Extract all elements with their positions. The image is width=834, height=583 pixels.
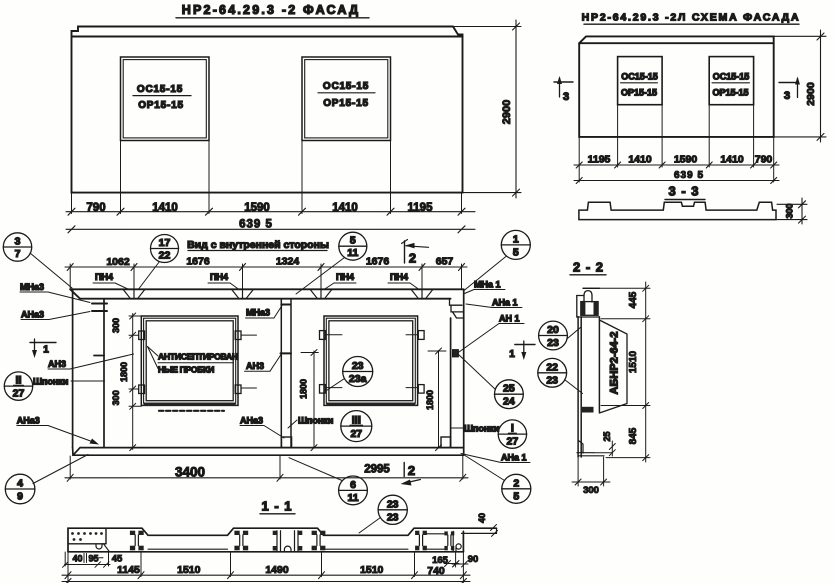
svg-text:1195: 1195 bbox=[408, 202, 434, 214]
svg-text:4: 4 bbox=[17, 478, 23, 490]
svg-text:1800: 1800 bbox=[299, 379, 309, 399]
svg-text:3 - 3: 3 - 3 bbox=[668, 184, 699, 199]
svg-text:300: 300 bbox=[111, 390, 121, 405]
svg-text:445: 445 bbox=[628, 291, 639, 308]
svg-text:790: 790 bbox=[86, 202, 105, 214]
svg-text:11: 11 bbox=[347, 492, 358, 504]
svg-text:ОС15-15: ОС15-15 bbox=[137, 84, 183, 95]
svg-text:ОР15-15: ОР15-15 bbox=[712, 88, 748, 98]
svg-text:1510: 1510 bbox=[628, 350, 639, 373]
svg-text:Вид с внутренней стороны: Вид с внутренней стороны bbox=[187, 239, 329, 251]
svg-text:7: 7 bbox=[15, 248, 21, 260]
svg-text:23: 23 bbox=[387, 511, 399, 523]
svg-text:27: 27 bbox=[350, 428, 362, 440]
svg-text:23: 23 bbox=[387, 498, 399, 510]
svg-text:2900: 2900 bbox=[805, 82, 817, 106]
svg-text:АНТИСЕПТИРОВАН: АНТИСЕПТИРОВАН bbox=[158, 352, 238, 362]
svg-text:1676: 1676 bbox=[366, 256, 390, 268]
svg-text:5: 5 bbox=[513, 246, 519, 258]
svg-text:27: 27 bbox=[13, 388, 25, 400]
svg-text:25: 25 bbox=[503, 383, 515, 395]
svg-text:24: 24 bbox=[503, 396, 515, 408]
svg-text:1: 1 bbox=[513, 233, 519, 245]
svg-text:НР2-64.29.3 -2 ФАСАД: НР2-64.29.3 -2 ФАСАД bbox=[182, 3, 360, 17]
svg-text:1062: 1062 bbox=[106, 256, 130, 268]
svg-text:1590: 1590 bbox=[674, 154, 698, 166]
svg-text:1410: 1410 bbox=[152, 202, 178, 214]
svg-text:1800: 1800 bbox=[119, 362, 129, 382]
svg-text:1590: 1590 bbox=[244, 202, 270, 214]
svg-text:1410: 1410 bbox=[332, 202, 358, 214]
svg-text:МНа 1: МНа 1 bbox=[474, 280, 501, 290]
svg-text:23а: 23а bbox=[349, 373, 367, 385]
svg-text:23: 23 bbox=[352, 360, 364, 372]
svg-text:27: 27 bbox=[507, 436, 519, 448]
svg-text:МНа3: МНа3 bbox=[20, 282, 44, 292]
svg-text:2: 2 bbox=[408, 463, 415, 478]
svg-text:2995: 2995 bbox=[364, 464, 390, 476]
svg-text:40: 40 bbox=[477, 513, 487, 523]
svg-text:1510: 1510 bbox=[177, 564, 201, 576]
svg-text:790: 790 bbox=[755, 154, 773, 166]
svg-text:3: 3 bbox=[784, 90, 790, 102]
svg-text:2: 2 bbox=[409, 251, 416, 266]
svg-text:2: 2 bbox=[513, 477, 519, 489]
svg-text:2 - 2: 2 - 2 bbox=[573, 260, 604, 275]
svg-text:1145: 1145 bbox=[117, 564, 140, 576]
svg-text:3400: 3400 bbox=[175, 465, 205, 480]
svg-text:5: 5 bbox=[350, 235, 356, 247]
svg-text:ПН4: ПН4 bbox=[390, 272, 408, 282]
svg-text:90: 90 bbox=[468, 554, 479, 565]
svg-text:ОС15-15: ОС15-15 bbox=[621, 72, 658, 82]
svg-text:45: 45 bbox=[112, 554, 123, 565]
svg-text:23: 23 bbox=[546, 374, 558, 386]
svg-text:639 5: 639 5 bbox=[239, 219, 273, 231]
svg-text:1410: 1410 bbox=[720, 154, 744, 166]
svg-text:1800: 1800 bbox=[425, 390, 435, 410]
svg-text:ПН4: ПН4 bbox=[95, 272, 113, 282]
svg-text:95: 95 bbox=[88, 554, 98, 564]
svg-text:1510: 1510 bbox=[360, 564, 384, 576]
svg-text:НР2-64.29.3 -2Л СХЕМА ФАСАДА: НР2-64.29.3 -2Л СХЕМА ФАСАДА bbox=[582, 12, 801, 24]
svg-text:1195: 1195 bbox=[588, 154, 611, 166]
svg-text:АНа3: АНа3 bbox=[17, 416, 40, 426]
svg-text:300: 300 bbox=[785, 203, 795, 218]
svg-text:ОР15-15: ОР15-15 bbox=[621, 88, 657, 98]
svg-text:1: 1 bbox=[43, 345, 49, 356]
svg-text:20: 20 bbox=[547, 324, 559, 336]
svg-text:23: 23 bbox=[547, 337, 559, 349]
svg-text:ОР15-15: ОР15-15 bbox=[138, 100, 184, 111]
svg-text:МНа3: МНа3 bbox=[246, 308, 270, 318]
svg-text:НЫЕ ПРОБКИ: НЫЕ ПРОБКИ bbox=[158, 365, 214, 375]
svg-text:1324: 1324 bbox=[276, 256, 300, 268]
svg-text:3: 3 bbox=[563, 91, 569, 103]
svg-text:ОС15-15: ОС15-15 bbox=[323, 81, 369, 92]
svg-text:Шпонки: Шпонки bbox=[33, 377, 68, 387]
svg-text:845: 845 bbox=[628, 427, 639, 444]
svg-text:АНа3: АНа3 bbox=[21, 310, 44, 320]
svg-text:1676: 1676 bbox=[186, 256, 210, 268]
svg-text:ОС15-15: ОС15-15 bbox=[713, 72, 750, 82]
svg-text:9: 9 bbox=[17, 491, 23, 503]
svg-text:АНа 1: АНа 1 bbox=[501, 453, 527, 463]
svg-text:3: 3 bbox=[15, 236, 21, 248]
svg-text:22: 22 bbox=[546, 361, 558, 373]
svg-text:АН3: АН3 bbox=[246, 361, 264, 371]
svg-text:22: 22 bbox=[159, 250, 171, 262]
svg-text:Шпонки: Шпонки bbox=[464, 424, 499, 434]
svg-text:1 - 1: 1 - 1 bbox=[261, 499, 292, 514]
svg-text:639 5: 639 5 bbox=[674, 170, 704, 181]
svg-text:1410: 1410 bbox=[628, 154, 652, 166]
svg-text:1: 1 bbox=[509, 349, 515, 360]
svg-text:5: 5 bbox=[513, 490, 519, 502]
svg-text:АНа 1: АНа 1 bbox=[492, 298, 518, 308]
svg-text:АНа3: АНа3 bbox=[240, 416, 263, 426]
svg-text:300: 300 bbox=[111, 318, 121, 333]
svg-text:ПН4: ПН4 bbox=[210, 272, 228, 282]
svg-text:6: 6 bbox=[350, 479, 356, 491]
svg-text:300: 300 bbox=[583, 485, 599, 496]
svg-text:2900: 2900 bbox=[501, 100, 513, 124]
svg-text:1490: 1490 bbox=[265, 564, 289, 576]
svg-text:АН3: АН3 bbox=[48, 359, 66, 369]
svg-text:17: 17 bbox=[159, 237, 171, 249]
svg-text:АБНР2-64-2: АБНР2-64-2 bbox=[609, 332, 621, 395]
svg-text:Шпонки: Шпонки bbox=[298, 416, 333, 426]
svg-text:657: 657 bbox=[436, 256, 454, 268]
svg-text:АН 1: АН 1 bbox=[499, 314, 520, 324]
svg-text:ПН4: ПН4 bbox=[336, 272, 354, 282]
svg-text:40: 40 bbox=[72, 554, 82, 564]
svg-text:ОР15-15: ОР15-15 bbox=[323, 98, 369, 109]
svg-text:740: 740 bbox=[427, 565, 445, 577]
svg-text:25: 25 bbox=[602, 431, 612, 441]
svg-text:11: 11 bbox=[347, 247, 358, 259]
